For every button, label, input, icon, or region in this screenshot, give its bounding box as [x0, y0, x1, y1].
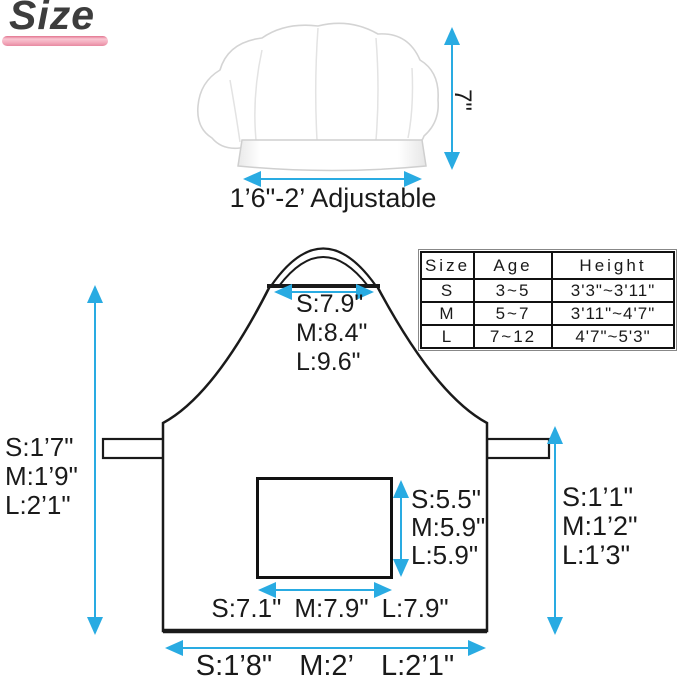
pocket-width-m: M:7.9" [294, 593, 368, 624]
skirt-length-l: L:1’3" [562, 541, 638, 570]
size-table-header-age: Age [474, 252, 552, 279]
waist-tie-right [487, 439, 549, 458]
bib-width-labels: S:7.9" M:8.4" L:9.6" [296, 290, 367, 377]
cell-size-m: M [421, 302, 474, 325]
cell-height-m: 3'11"~4'7" [552, 302, 674, 325]
total-length-labels: S:1’7" M:1’9" L:2’1" [5, 433, 78, 520]
waist-tie-left [103, 439, 165, 458]
table-row: M 5~7 3'11"~4'7" [421, 302, 674, 325]
size-table-header-row: Size Age Height [421, 252, 674, 279]
size-table-header-size: Size [421, 252, 474, 279]
cell-height-l: 4'7"~5'3" [552, 325, 674, 348]
hat-height-label: 7" [448, 89, 476, 111]
table-row: S 3~5 3'3"~3'11" [421, 279, 674, 302]
skirt-length-labels: S:1’1" M:1’2" L:1’3" [562, 483, 638, 570]
size-chart-image: { "title": { "text": "Size" }, "hat": { … [0, 0, 679, 678]
bottom-width-m: M:2’ [299, 650, 354, 683]
bib-width-l: L:9.6" [296, 348, 367, 377]
skirt-length-m: M:1’2" [562, 512, 638, 541]
total-length-s: S:1’7" [5, 433, 78, 462]
size-table-header-height: Height [552, 252, 674, 279]
skirt-length-s: S:1’1" [562, 483, 638, 512]
pocket-height-labels: S:5.5" M:5.9" L:5.9" [411, 485, 485, 569]
bib-width-m: M:8.4" [296, 319, 367, 348]
bottom-width-labels: S:1’8" M:2’ L:2’1" [160, 650, 490, 683]
bottom-width-s: S:1’8" [196, 650, 272, 683]
size-table-wrapper: Size Age Height S 3~5 3'3"~3'11" M 5~7 3… [418, 249, 677, 351]
apron-pocket [258, 479, 392, 578]
cell-size-l: L [421, 325, 474, 348]
pocket-height-l: L:5.9" [411, 541, 485, 569]
pocket-width-labels: S:7.1" M:7.9" L:7.9" [218, 593, 442, 624]
hat-width-label: 1’6"-2’ Adjustable [228, 183, 438, 214]
bottom-width-l: L:2’1" [381, 650, 454, 683]
cell-age-m: 5~7 [474, 302, 552, 325]
pocket-width-s: S:7.1" [211, 593, 281, 624]
apron-neck-strap [271, 249, 376, 287]
pocket-height-m: M:5.9" [411, 513, 485, 541]
cell-age-s: 3~5 [474, 279, 552, 302]
pocket-height-s: S:5.5" [411, 485, 485, 513]
total-length-m: M:1’9" [5, 462, 78, 491]
cell-size-s: S [421, 279, 474, 302]
cell-height-s: 3'3"~3'11" [552, 279, 674, 302]
table-row: L 7~12 4'7"~5'3" [421, 325, 674, 348]
total-length-l: L:2’1" [5, 491, 78, 520]
cell-age-l: 7~12 [474, 325, 552, 348]
pocket-width-l: L:7.9" [382, 593, 449, 624]
size-table: Size Age Height S 3~5 3'3"~3'11" M 5~7 3… [420, 251, 675, 349]
bib-width-s: S:7.9" [296, 290, 367, 319]
